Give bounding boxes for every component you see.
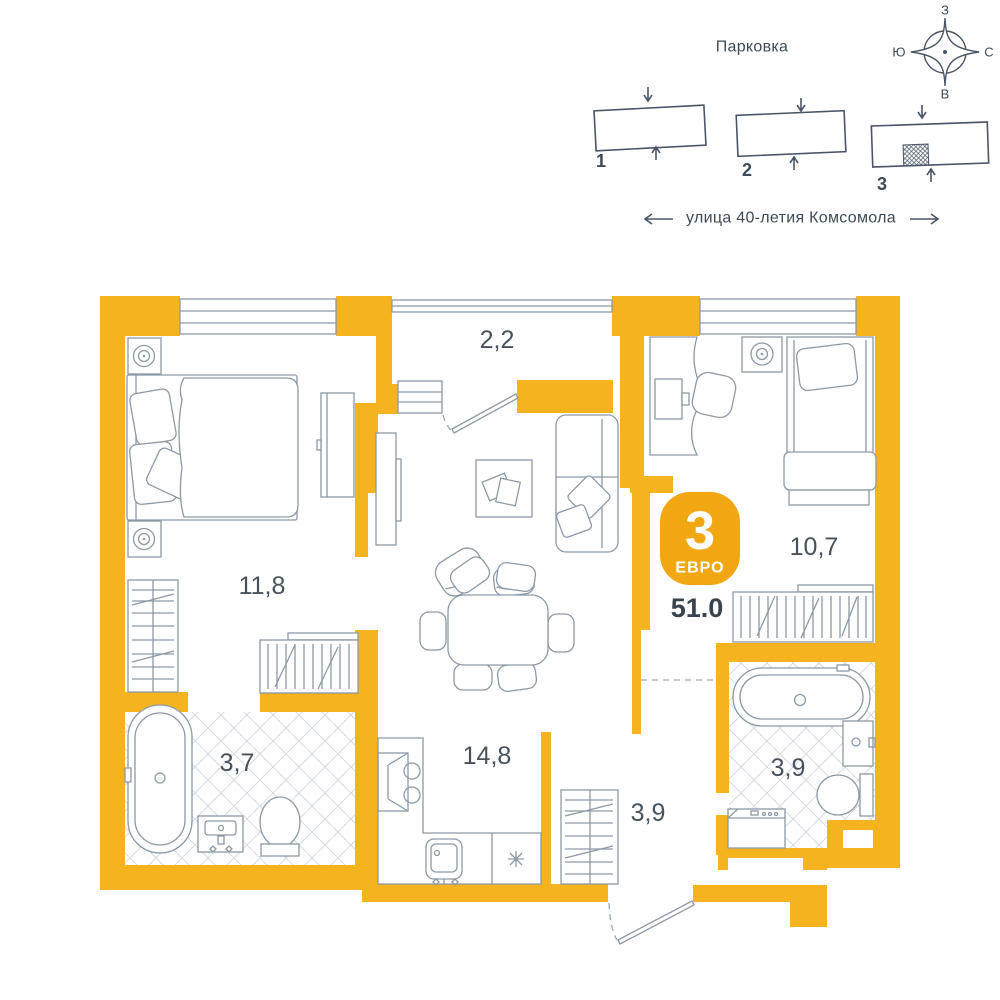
room-area-bath-1: 3,7 xyxy=(220,749,255,777)
compass-west-label: З xyxy=(941,3,949,18)
compass-north-label: С xyxy=(984,45,993,60)
wardrobe xyxy=(260,633,358,693)
building-3-outline xyxy=(871,122,988,167)
vanity-sink xyxy=(198,816,243,852)
wardrobe xyxy=(128,580,178,692)
room-area-hall: 3,9 xyxy=(631,799,666,827)
building-3-label: 3 xyxy=(877,174,887,194)
bedroom-2-window xyxy=(700,299,856,334)
room-area-bedroom-1: 11,8 xyxy=(239,572,286,600)
building-2-outline xyxy=(736,111,846,157)
total-area-label: 51.0 xyxy=(671,593,724,623)
street: улица 40-летия Комсомола xyxy=(645,210,938,227)
desk xyxy=(650,337,699,455)
ceiling-lamp xyxy=(742,337,782,372)
chair xyxy=(548,614,574,652)
kitchen-sink xyxy=(426,839,462,885)
bedroom-1-window xyxy=(180,299,336,334)
compass-south-label: Ю xyxy=(892,45,905,60)
washing-machine xyxy=(728,809,785,848)
badge-type-label: ЕВРО xyxy=(675,560,724,577)
dresser xyxy=(317,393,354,497)
room-area-living: 14,8 xyxy=(463,742,512,770)
nightstand-lamp xyxy=(128,521,161,557)
fridge-icon xyxy=(508,851,524,867)
building-2-label: 2 xyxy=(742,160,752,180)
double-bed xyxy=(127,375,298,520)
dining-table xyxy=(448,595,548,665)
shelf-unit xyxy=(398,381,442,413)
compass-east-label: В xyxy=(941,87,950,102)
bathtub xyxy=(125,705,192,853)
blanket xyxy=(179,378,298,517)
pillow xyxy=(129,388,177,446)
tv xyxy=(396,459,401,521)
chair xyxy=(454,664,492,690)
balcony-glazing xyxy=(392,300,612,312)
building-1-label: 1 xyxy=(596,151,606,171)
nightstand-lamp xyxy=(128,338,161,374)
parking-label: Парковка xyxy=(716,39,789,56)
monitor xyxy=(655,379,682,419)
coffee-table xyxy=(476,460,532,517)
chair xyxy=(420,612,446,650)
street-label: улица 40-летия Комсомола xyxy=(686,210,896,227)
bath-tap xyxy=(837,665,849,671)
compass-center-dot xyxy=(943,50,947,54)
room-area-balcony: 2,2 xyxy=(480,326,515,354)
shaft-niche xyxy=(728,858,803,885)
bathtub xyxy=(733,665,870,726)
pillow xyxy=(796,343,859,392)
hall-wardrobe xyxy=(561,790,618,884)
bath-tap xyxy=(125,768,131,782)
apartment-plan-figure: Парковка З С В Ю 1 2 xyxy=(0,0,1000,1000)
toilet xyxy=(260,797,300,856)
wardrobe xyxy=(733,585,873,642)
room-area-bedroom-2: 10,7 xyxy=(790,533,839,561)
building-1-outline xyxy=(594,105,706,151)
blanket xyxy=(784,452,876,490)
room-area-bath-2: 3,9 xyxy=(771,754,806,782)
washbasin xyxy=(843,721,875,766)
sofa xyxy=(555,415,618,552)
chair xyxy=(495,561,536,592)
toilet xyxy=(817,774,873,816)
chair xyxy=(496,661,537,692)
badge-rooms-count: 3 xyxy=(685,501,715,561)
single-bed xyxy=(784,337,876,505)
building-3-apartment-marker xyxy=(903,144,929,166)
corner-niche xyxy=(843,830,873,848)
